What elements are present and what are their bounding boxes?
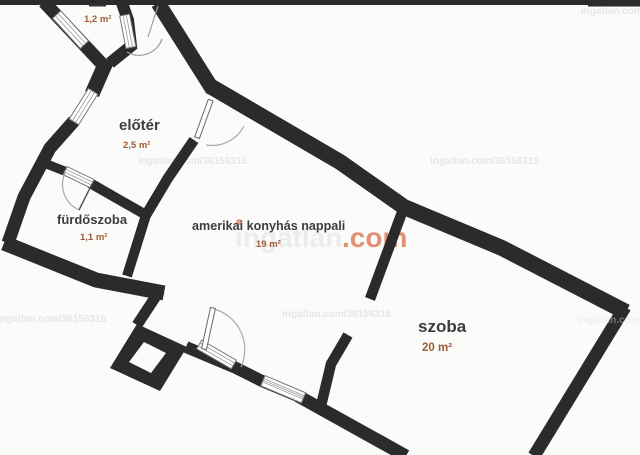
svg-text:szoba: szoba — [418, 317, 467, 336]
svg-text:ingatlan.com/36156315: ingatlan.com/36156315 — [138, 156, 247, 167]
svg-text:2,5 m²: 2,5 m² — [123, 140, 150, 151]
svg-text:ingatlan.com/3615: ingatlan.com/3615 — [581, 6, 640, 17]
svg-text:ingatlan.com/36156315: ingatlan.com/36156315 — [430, 156, 539, 167]
svg-text:1,2 m²: 1,2 m² — [84, 14, 111, 25]
svg-text:20 m²: 20 m² — [422, 342, 452, 354]
svg-text:amerikai konyhás nappali: amerikai konyhás nappali — [192, 219, 345, 233]
svg-text:ingatlan.com/36156315: ingatlan.com/36156315 — [282, 309, 391, 320]
svg-text:1,1 m²: 1,1 m² — [80, 232, 107, 243]
svg-text:fürdőszoba: fürdőszoba — [57, 212, 128, 227]
svg-text:19 m²: 19 m² — [256, 239, 281, 250]
svg-text:ingatlan.com/36156315: ingatlan.com/36156315 — [0, 314, 106, 325]
svg-text:ingatlan.com/36: ingatlan.com/36 — [578, 315, 640, 326]
svg-text:előtér: előtér — [119, 117, 160, 134]
